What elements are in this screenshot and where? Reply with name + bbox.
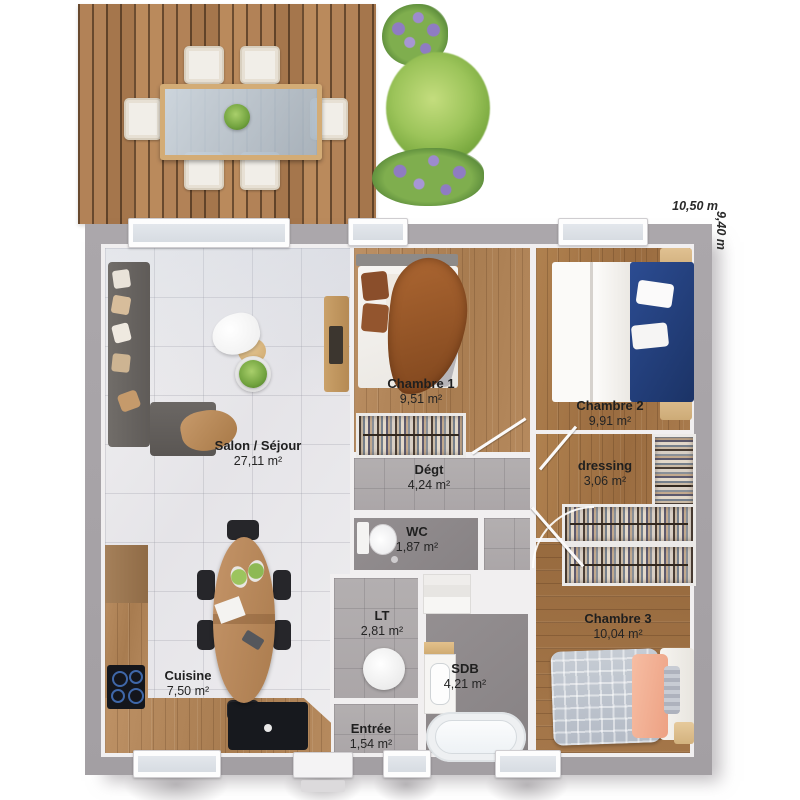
room-label-sdb: SDB 4,21 m² — [444, 661, 486, 692]
room-name-salon: Salon / Séjour — [215, 438, 302, 454]
room-name-dressing: dressing — [578, 458, 632, 474]
room-name-entree: Entrée — [350, 721, 392, 737]
room-name-lt: LT — [361, 608, 403, 624]
room-label-entree: Entrée 1,54 m² — [350, 721, 392, 752]
window-cuisine-pane — [138, 756, 216, 772]
wardrobe-chambre1 — [356, 413, 466, 458]
room-label-chambre1: Chambre 1 9,51 m² — [387, 376, 454, 407]
bed3-nightstand — [674, 722, 694, 744]
room-area-degagement: 4,24 m² — [408, 478, 450, 493]
room-label-lt: LT 2,81 m² — [361, 608, 403, 639]
water-heater — [363, 648, 405, 690]
plant-salon — [239, 360, 267, 388]
window-chambre3 — [495, 750, 561, 778]
table-centerpiece-plant — [224, 104, 250, 130]
toilet-bowl — [369, 524, 397, 555]
sink-faucet — [264, 724, 272, 732]
window-salon-pane — [133, 224, 285, 242]
dining-chair-right-1 — [273, 570, 291, 600]
tv-screen — [329, 326, 343, 364]
cooktop — [107, 665, 145, 709]
bed2-pillow-1 — [636, 280, 675, 309]
room-name-chambre1: Chambre 1 — [387, 376, 454, 392]
window-sdb — [383, 750, 431, 778]
window-cuisine — [133, 750, 221, 778]
room-label-chambre3: Chambre 3 10,04 m² — [584, 611, 651, 642]
room-name-chambre3: Chambre 3 — [584, 611, 651, 627]
window-salon — [128, 218, 290, 248]
dining-chair-right-2 — [273, 620, 291, 650]
floor-plan-canvas: 10,50 m 9,40 m — [0, 0, 800, 800]
room-name-degagement: Dégt — [408, 462, 450, 478]
linen-cabinet — [423, 574, 471, 614]
dimension-width-label: 10,50 m — [630, 199, 718, 213]
dining-chair-left-1 — [197, 570, 215, 600]
kitchen-tall-cabinet — [105, 545, 148, 603]
lavender-plant-bottom — [372, 148, 484, 206]
window-chambre1 — [348, 218, 408, 246]
front-door-step — [301, 780, 345, 792]
room-area-salon: 27,11 m² — [215, 454, 302, 469]
room-area-chambre1: 9,51 m² — [387, 392, 454, 407]
burner-3 — [111, 689, 125, 703]
room-area-cuisine: 7,50 m² — [165, 684, 212, 699]
floor-drain — [391, 556, 398, 563]
room-label-degagement: Dégt 4,24 m² — [408, 462, 450, 493]
room-area-wc: 1,87 m² — [396, 540, 438, 555]
room-label-dressing: dressing 3,06 m² — [578, 458, 632, 489]
room-label-wc: WC 1,87 m² — [396, 524, 438, 555]
room-area-sdb: 4,21 m² — [444, 677, 486, 692]
sofa-pillow-4 — [111, 353, 131, 373]
room-area-chambre3: 10,04 m² — [584, 627, 651, 642]
deck-chair-top-right — [240, 46, 280, 84]
deck-chair-left — [124, 98, 162, 140]
toilet-tank — [357, 522, 369, 554]
room-area-entree: 1,54 m² — [350, 737, 392, 752]
room-name-wc: WC — [396, 524, 438, 540]
window-sdb-pane — [388, 756, 426, 772]
bed2-pillow-2 — [631, 322, 669, 350]
window-chambre2 — [558, 218, 648, 246]
room-name-chambre2: Chambre 2 — [576, 398, 643, 414]
bed3-peach-blanket — [632, 654, 668, 738]
front-door — [293, 752, 353, 778]
room-label-chambre2: Chambre 2 9,91 m² — [576, 398, 643, 429]
burner-2 — [129, 670, 143, 684]
bed2-duvet-white — [552, 262, 634, 402]
room-name-cuisine: Cuisine — [165, 668, 212, 684]
burner-4 — [128, 688, 144, 704]
window-chambre3-pane — [500, 756, 556, 772]
burner-1 — [112, 671, 128, 687]
room-area-dressing: 3,06 m² — [578, 474, 632, 489]
deck-chair-top-left — [184, 46, 224, 84]
bed1-pillow-2 — [361, 303, 389, 333]
bed2-duvet-crease — [590, 262, 593, 402]
sofa-pillow-1 — [112, 269, 131, 289]
room-area-lt: 2,81 m² — [361, 624, 403, 639]
window-chambre2-pane — [563, 224, 643, 240]
bed1-pillow-1 — [361, 271, 390, 302]
sofa-pillow-2 — [111, 295, 132, 316]
wc-side-closet-floor — [484, 518, 530, 570]
window-chambre1-pane — [353, 224, 403, 240]
vanity-shelf — [424, 642, 454, 654]
bathtub-basin — [435, 720, 517, 754]
room-label-cuisine: Cuisine 7,50 m² — [165, 668, 212, 699]
room-label-salon: Salon / Séjour 27,11 m² — [215, 438, 302, 469]
bed3-pillow — [664, 666, 680, 714]
dimension-height-label: 9,40 m — [714, 211, 728, 250]
room-area-chambre2: 9,91 m² — [576, 414, 643, 429]
room-name-sdb: SDB — [444, 661, 486, 677]
